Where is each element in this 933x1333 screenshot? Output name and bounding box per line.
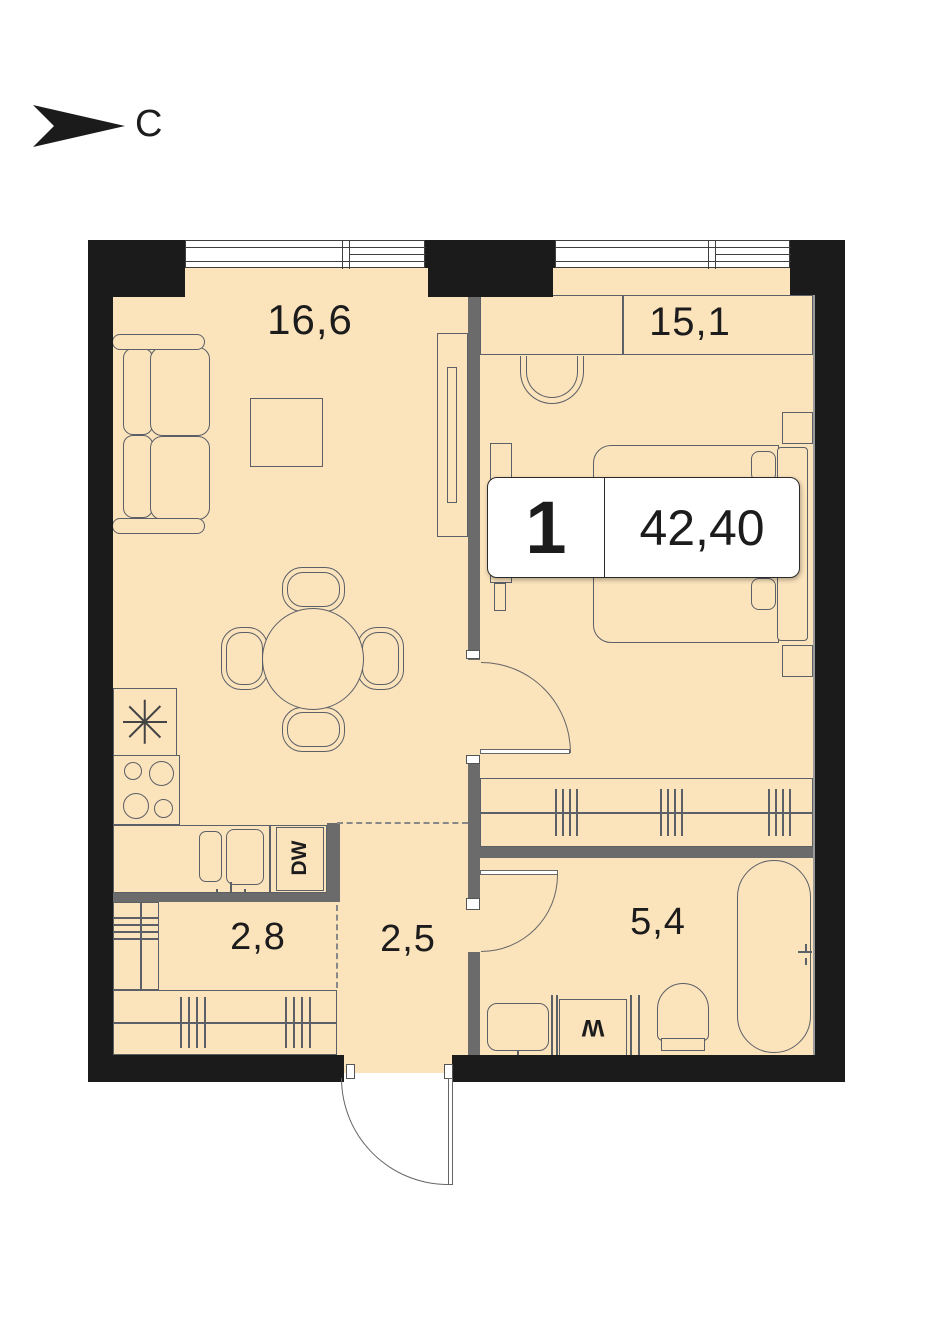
burner-icon [123, 793, 149, 819]
unit-rooms-count: 1 [488, 478, 605, 577]
hood-asterisk-icon [123, 700, 167, 744]
tv-panel-stand [494, 583, 506, 611]
sofa-armrest [112, 334, 205, 350]
partition-living-bedroom [468, 295, 480, 660]
dining-table [262, 608, 364, 710]
outer-wall-bottom [452, 1055, 845, 1082]
corridor-area-label: 2,5 [358, 918, 458, 961]
pillow [751, 578, 776, 610]
closet-hatch [667, 789, 669, 836]
partition-corridor-bath [468, 952, 480, 1055]
outer-wall-right [815, 240, 845, 1082]
desk-divider [622, 295, 624, 355]
hall-closet-shelf-line [113, 1022, 337, 1024]
partition-kitchen-end [327, 823, 340, 902]
door-jamb [444, 1064, 453, 1079]
dishwasher-label: DW [288, 836, 312, 880]
window-living [185, 240, 425, 268]
dining-chair [282, 567, 345, 612]
closet-hatch [681, 789, 683, 836]
living-area-label: 16,6 [250, 296, 370, 344]
counter-divider [269, 825, 271, 893]
sofa-seat-cushion [150, 347, 210, 436]
dining-chair [221, 627, 268, 690]
closet-hatch [768, 789, 770, 836]
hall-wardrobe-rod [140, 902, 142, 990]
sofa-back-cushion [123, 435, 153, 518]
zone-dash-line [337, 822, 468, 824]
outer-wall-bottom [88, 1055, 344, 1082]
tub-faucet-icon [798, 951, 812, 953]
bathtub [737, 860, 811, 1053]
hall-wardrobe-shelf [113, 917, 158, 919]
partition-bath-top [480, 847, 815, 858]
burner-icon [124, 762, 142, 780]
entrance-threshold [344, 1055, 452, 1073]
closet-hatch [555, 789, 557, 836]
entrance-door-leaf [448, 1078, 453, 1185]
wall-pier [113, 268, 185, 297]
bath-partition [556, 995, 558, 1056]
closet-hatch [782, 789, 784, 836]
toilet [657, 983, 709, 1041]
partition-kitchen-hall [113, 893, 330, 902]
closet-hatch [660, 789, 662, 836]
wall-pier [790, 268, 815, 295]
closet-hatch [301, 997, 303, 1048]
closet-hatch [285, 997, 287, 1048]
sofa-armrest [112, 518, 205, 534]
north-arrow-icon [33, 103, 128, 149]
washing-machine-label: W [571, 1013, 615, 1041]
closet-hatch [562, 789, 564, 836]
zone-dash-line [336, 905, 338, 988]
partition-corridor-bath [468, 757, 480, 898]
burner-icon [149, 761, 174, 786]
unit-total-area: 42,40 [605, 478, 799, 577]
closet-hatch [576, 789, 578, 836]
door-jamb [466, 650, 480, 659]
outer-wall-top [425, 240, 555, 268]
closet-shelf-line [480, 812, 813, 814]
washbasin [487, 1003, 549, 1051]
wall-pier [428, 268, 553, 297]
sink-basin [226, 829, 264, 885]
closet-hatch [293, 997, 295, 1048]
tub-faucet-icon [805, 944, 807, 951]
north-label: С [135, 103, 162, 146]
closet-hatch [775, 789, 777, 836]
side-table [250, 398, 323, 467]
closet-hatch [204, 997, 206, 1048]
tv-icon [447, 367, 457, 503]
nightstand [782, 645, 813, 677]
outer-wall-top [88, 240, 185, 268]
closet-hatch [789, 789, 791, 836]
door-jamb [346, 1064, 355, 1079]
outer-wall-left [88, 240, 113, 1082]
hall-wardrobe [113, 902, 159, 990]
sofa-back-cushion [123, 348, 153, 435]
hall-wardrobe-shelf [113, 931, 158, 933]
nightstand [782, 412, 813, 444]
entrance-door-swing [341, 1078, 448, 1185]
bath-partition [638, 995, 640, 1056]
bedroom-area-label: 15,1 [630, 300, 750, 345]
toilet-base [661, 1038, 705, 1051]
closet-hatch [188, 997, 190, 1048]
sink-basin [199, 831, 222, 882]
window-bedroom [555, 240, 790, 268]
closet-hatch [674, 789, 676, 836]
closet-hatch [309, 997, 311, 1048]
hallway-area-label: 2,8 [208, 916, 308, 959]
tub-faucet-icon [805, 958, 807, 965]
closet-hatch [569, 789, 571, 836]
bath-partition [551, 995, 553, 1056]
hall-wardrobe-shelf [113, 938, 158, 940]
outer-wall-top [790, 240, 845, 268]
bath-partition [630, 995, 632, 1056]
burner-icon [154, 799, 173, 818]
closet-hatch [180, 997, 182, 1048]
door-jamb [466, 898, 480, 910]
sofa-seat-cushion [150, 436, 210, 520]
bathroom-area-label: 5,4 [608, 901, 708, 944]
hall-wardrobe-shelf [113, 924, 158, 926]
dining-chair [282, 707, 345, 752]
floor-plan: С DW [0, 0, 933, 1333]
unit-badge: 1 42,40 [487, 477, 800, 578]
closet-hatch [196, 997, 198, 1048]
dining-chair [357, 627, 404, 690]
door-jamb [466, 755, 480, 764]
